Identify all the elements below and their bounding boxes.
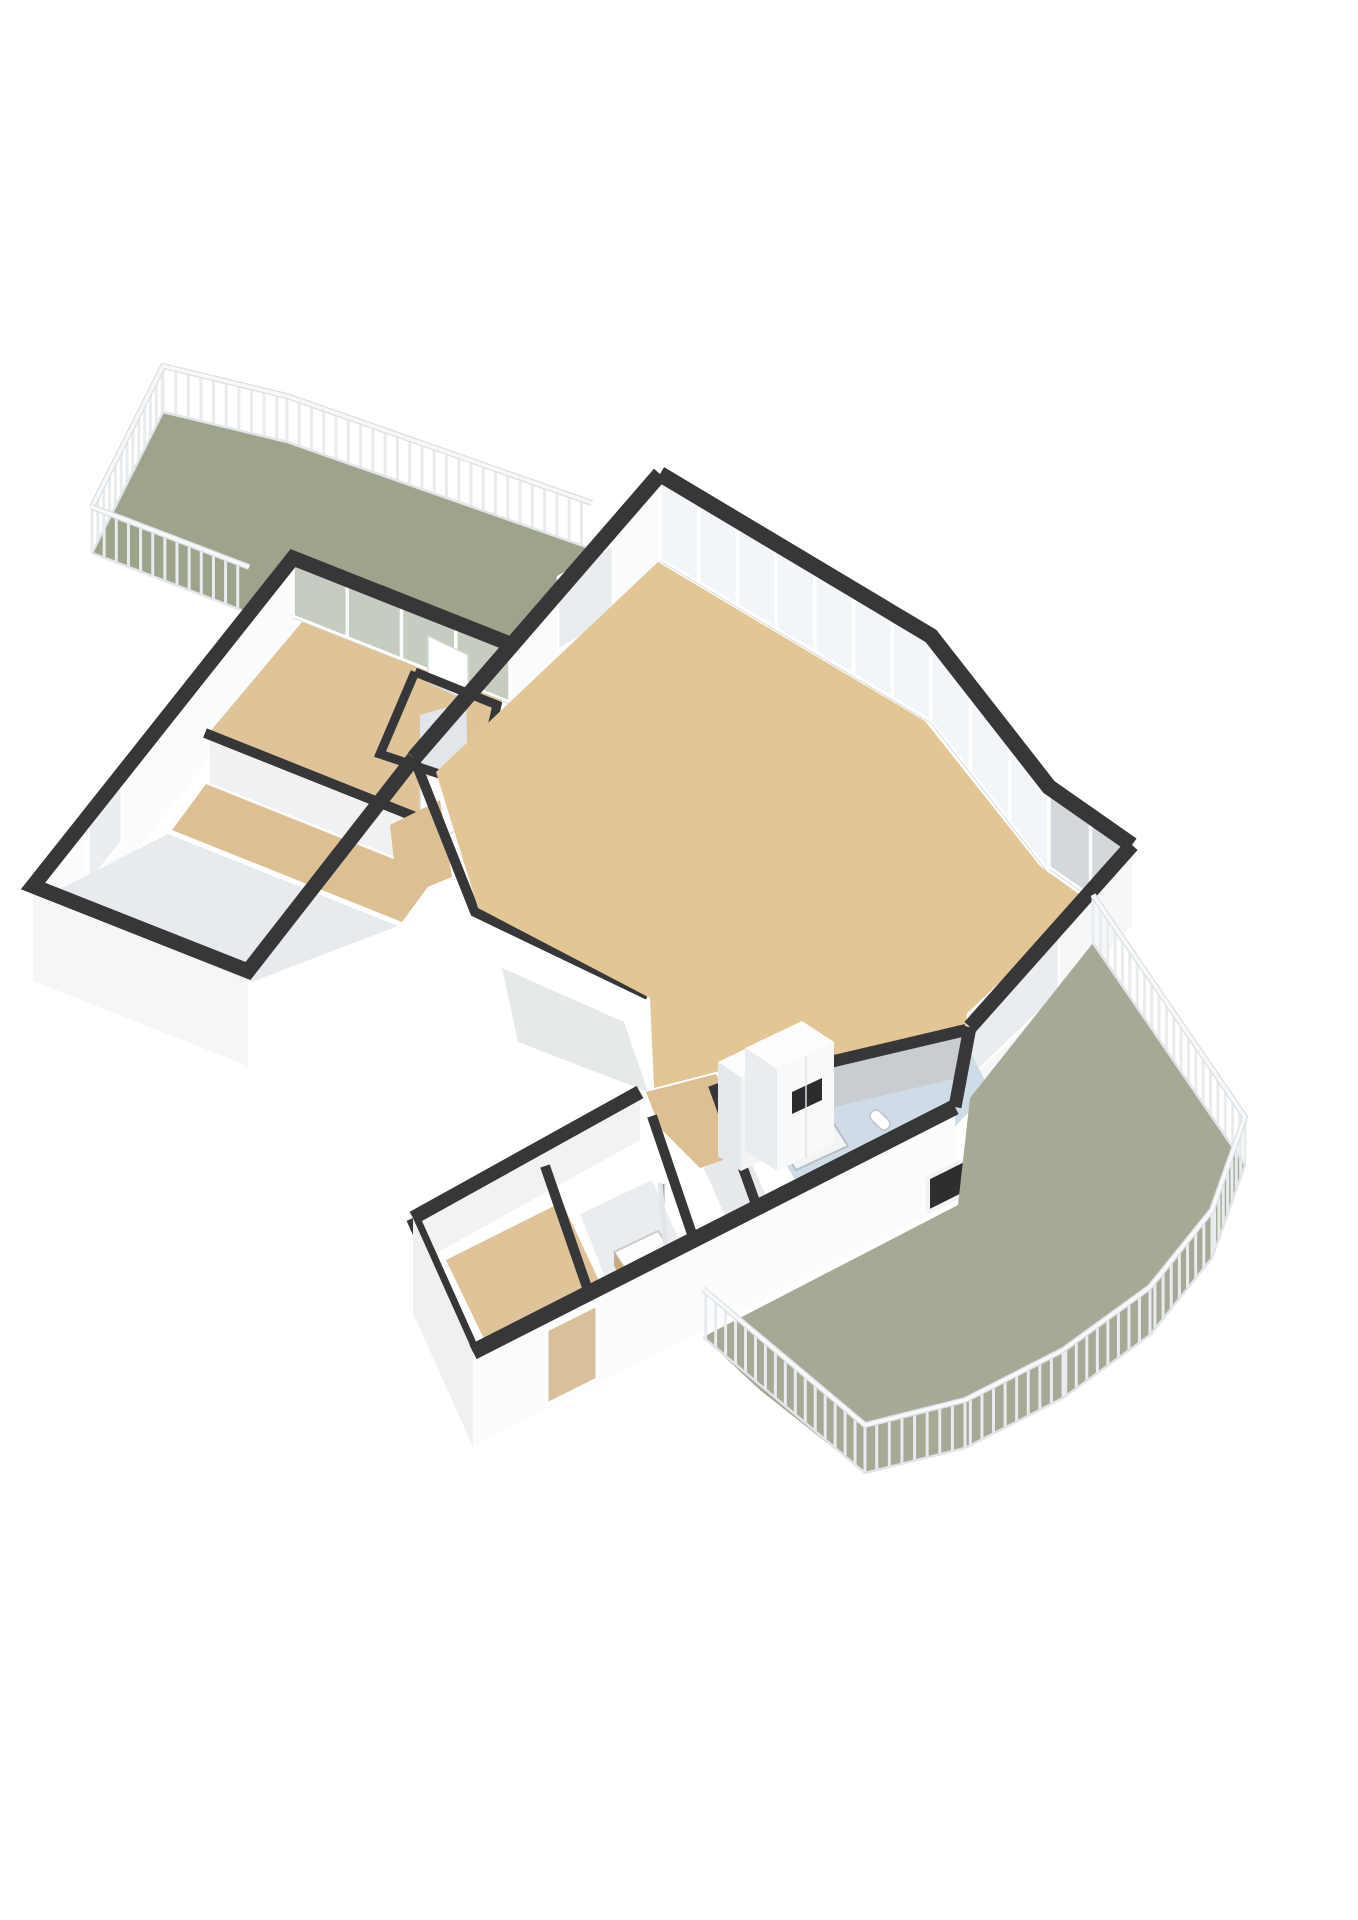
floorplan-page: [0, 0, 1358, 1920]
wardrobe-big-side: [745, 1048, 777, 1171]
wardrobe-small-side: [718, 1062, 741, 1171]
toilet-icon: [876, 1116, 884, 1124]
floorplan-svg: [0, 0, 1358, 1920]
